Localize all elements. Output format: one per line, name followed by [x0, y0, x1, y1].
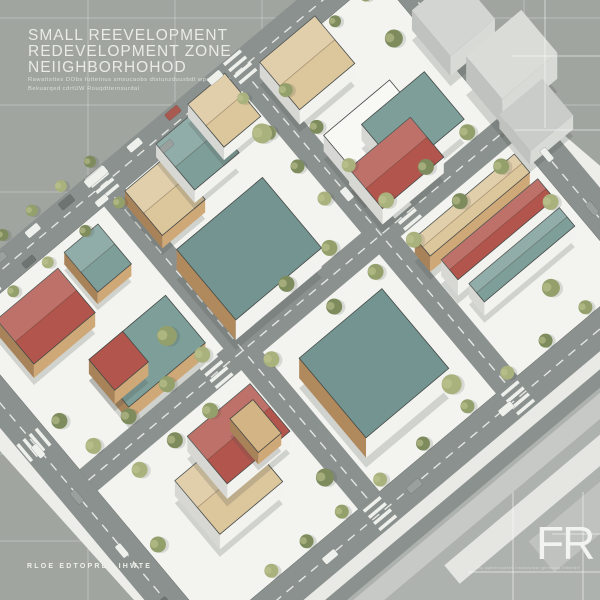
bottom-left-caption: RLOE EDTOPRL LIHWTE [27, 563, 152, 570]
poster-site-plan: SMALL REEVELOPMENT REDEVELOPMENT ZONE NE… [0, 0, 600, 600]
fr-logomark: FR [536, 517, 594, 569]
subtitle-line-2: Bekuarqed cdrtUW Rouqdtternsurdal [28, 86, 140, 92]
title-line-1: SMALL REEVELOPMENT [28, 27, 228, 44]
logo-subcaption: rts oqevrnoattes lrsseoslcsr ghrtssos tr… [477, 566, 580, 570]
title-line-2: REDEVELOPMENT ZONE [28, 43, 232, 60]
title-line-3: NEIIGHBORHOHOD [28, 59, 187, 76]
title-block: SMALL REEVELOPMENT REDEVELOPMENT ZONE NE… [28, 27, 232, 92]
site-plan-canvas: SMALL REEVELOPMENT REDEVELOPMENT ZONE NE… [0, 0, 600, 600]
subtitle-line-1: Rawattsttes DObs futtetnus smsucaobs dts… [28, 77, 216, 83]
